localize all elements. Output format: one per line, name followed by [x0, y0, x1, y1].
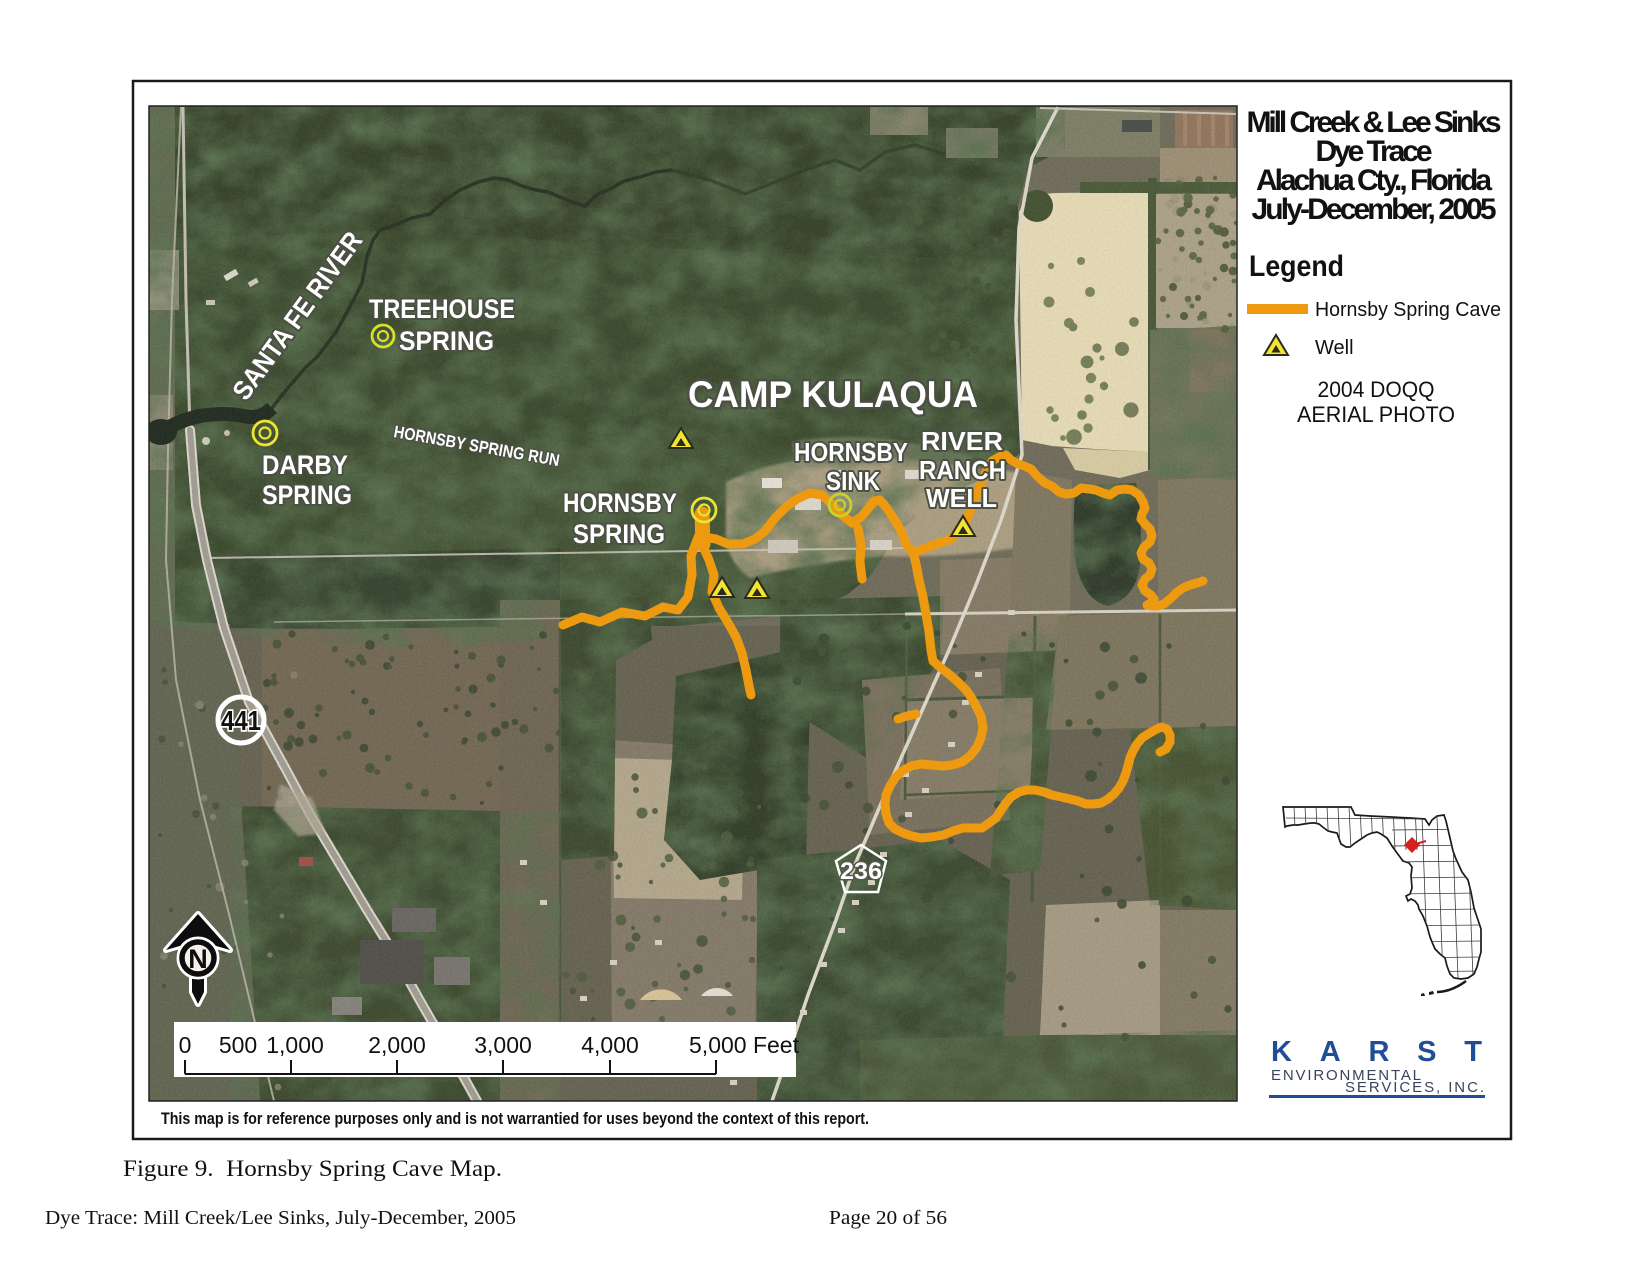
svg-text:July-December, 2005: July-December, 2005	[1252, 193, 1497, 226]
svg-text:236: 236	[840, 858, 882, 885]
svg-text:RIVER: RIVER	[921, 426, 1003, 456]
svg-text:Well: Well	[1315, 337, 1354, 359]
svg-text:N: N	[188, 944, 208, 974]
svg-text:2,000: 2,000	[368, 1032, 426, 1058]
svg-text:5,000 Feet: 5,000 Feet	[689, 1032, 800, 1058]
svg-text:Page 20 of 56: Page 20 of 56	[829, 1207, 947, 1229]
svg-text:2004 DOQQ: 2004 DOQQ	[1318, 377, 1435, 402]
svg-text:0: 0	[179, 1032, 192, 1058]
svg-text:441: 441	[221, 705, 261, 736]
svg-text:SPRING: SPRING	[399, 326, 494, 356]
svg-text:TREEHOUSE: TREEHOUSE	[369, 294, 515, 324]
svg-text:WELL: WELL	[926, 483, 997, 513]
svg-text:HORNSBY: HORNSBY	[794, 437, 908, 467]
svg-text:Legend: Legend	[1249, 250, 1344, 283]
svg-text:RANCH: RANCH	[919, 455, 1006, 485]
svg-text:SPRING: SPRING	[573, 519, 665, 549]
svg-text:SPRING: SPRING	[262, 480, 352, 510]
svg-text:1,000: 1,000	[266, 1032, 324, 1058]
svg-text:HORNSBY: HORNSBY	[563, 488, 677, 518]
svg-text:AERIAL PHOTO: AERIAL PHOTO	[1297, 402, 1455, 427]
svg-text:This map is for reference purp: This map is for reference purposes only …	[161, 1109, 869, 1128]
svg-text:Hornsby Spring Cave: Hornsby Spring Cave	[1315, 299, 1501, 321]
svg-text:Dye Trace: Mill Creek/Lee Sink: Dye Trace: Mill Creek/Lee Sinks, July-De…	[45, 1207, 516, 1229]
svg-text:3,000: 3,000	[474, 1032, 532, 1058]
svg-text:Figure 9. Hornsby Spring Cave: Figure 9. Hornsby Spring Cave Map.	[123, 1156, 502, 1181]
svg-text:4,000: 4,000	[581, 1032, 639, 1058]
svg-text:CAMP KULAQUA: CAMP KULAQUA	[688, 374, 978, 415]
svg-text:SINK: SINK	[826, 466, 880, 496]
svg-text:DARBY: DARBY	[262, 450, 348, 480]
svg-text:SERVICES, INC.: SERVICES, INC.	[1345, 1079, 1484, 1096]
svg-text:500: 500	[219, 1032, 257, 1058]
